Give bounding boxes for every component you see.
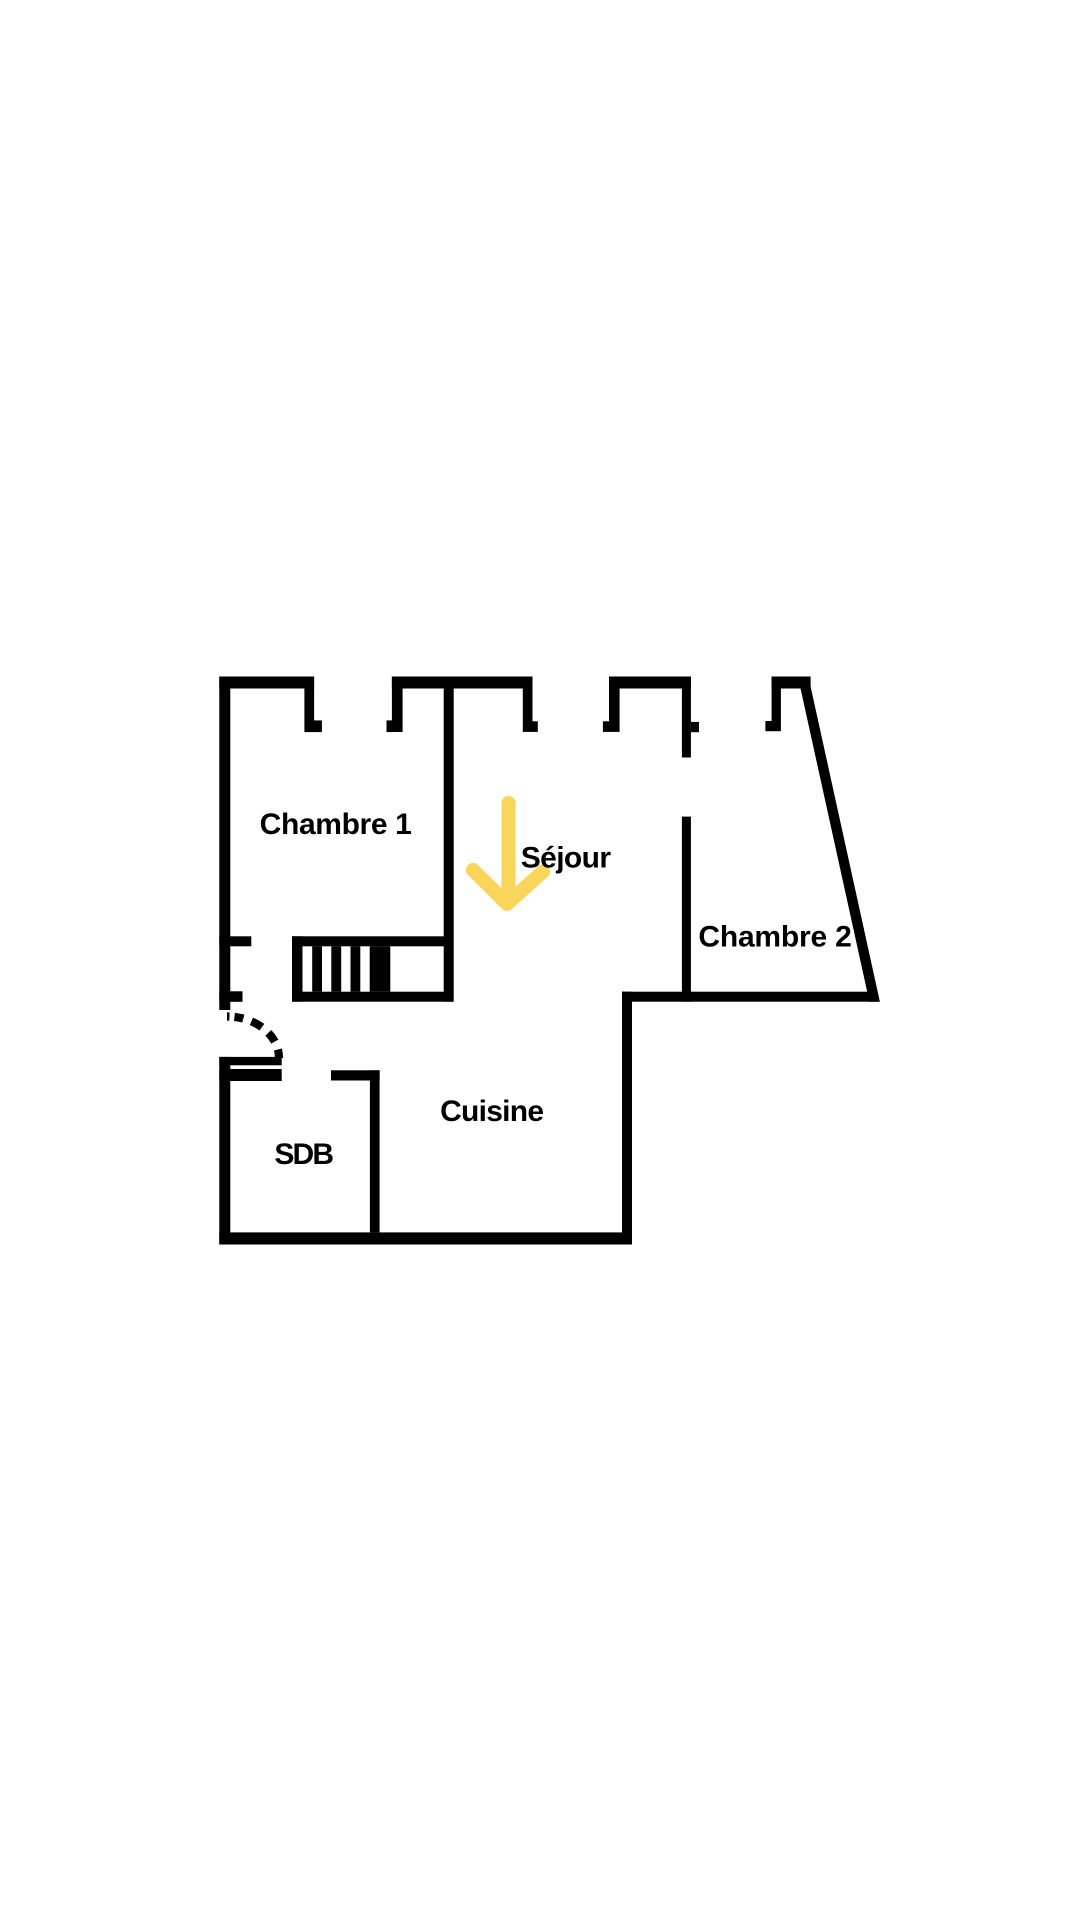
svg-text:Chambre 2: Chambre 2 (698, 921, 851, 954)
svg-text:Séjour: Séjour (521, 842, 612, 875)
svg-text:Cuisine: Cuisine (440, 1095, 543, 1128)
svg-text:Chambre 1: Chambre 1 (260, 808, 412, 841)
svg-text:SDB: SDB (274, 1138, 333, 1171)
